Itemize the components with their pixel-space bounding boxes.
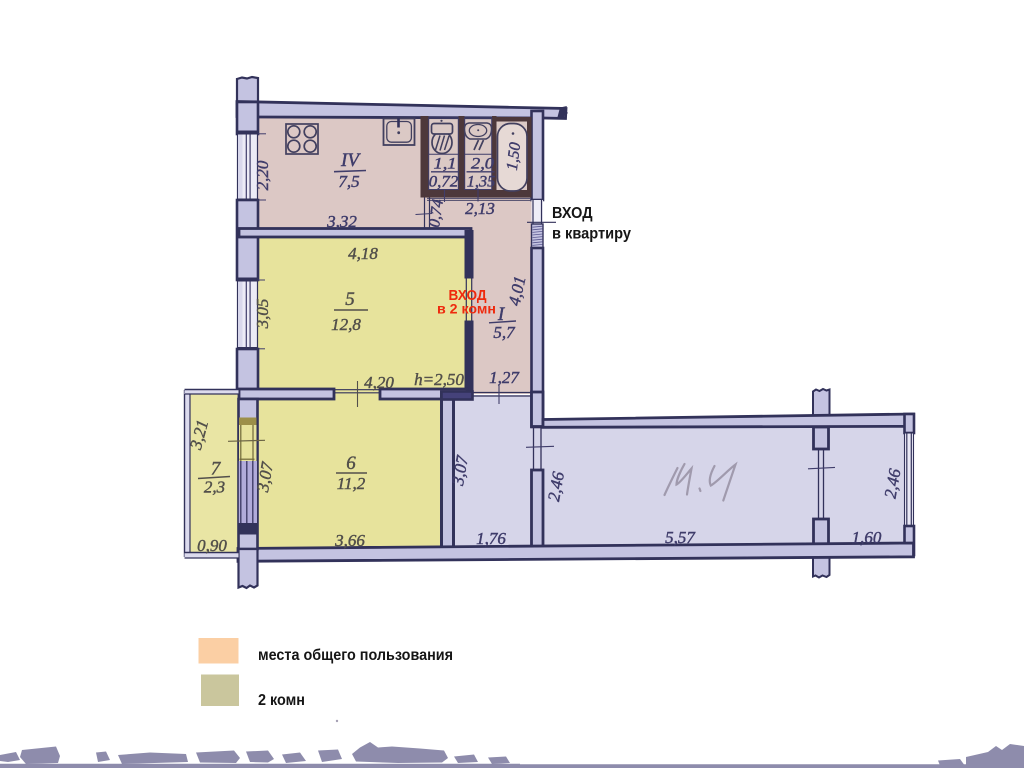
svg-text:1,76: 1,76 — [476, 529, 506, 548]
svg-text:IV: IV — [340, 150, 361, 171]
svg-text:1,50: 1,50 — [504, 142, 524, 172]
svg-text:1,60: 1,60 — [852, 528, 882, 547]
svg-text:3,05: 3,05 — [253, 299, 272, 330]
svg-text:в 2 комн: в 2 комн — [437, 302, 496, 317]
svg-text:1,27: 1,27 — [489, 368, 520, 387]
svg-text:0,72: 0,72 — [429, 174, 459, 191]
svg-text:5: 5 — [345, 289, 355, 310]
svg-text:в квартиру: в квартиру — [552, 226, 631, 243]
svg-text:1,1: 1,1 — [434, 156, 457, 173]
svg-text:ВХОД: ВХОД — [552, 205, 593, 222]
svg-text:2,13: 2,13 — [465, 199, 495, 218]
svg-text:4,18: 4,18 — [348, 244, 378, 263]
svg-text:4,20: 4,20 — [364, 373, 394, 392]
svg-text:места общего пользования: места общего пользования — [258, 647, 453, 664]
svg-text:2,3: 2,3 — [204, 478, 225, 497]
svg-text:11,2: 11,2 — [337, 474, 366, 493]
svg-text:5,7: 5,7 — [493, 323, 516, 342]
svg-text:5,57: 5,57 — [665, 528, 696, 547]
svg-text:12,8: 12,8 — [331, 315, 361, 334]
svg-text:3,32: 3,32 — [326, 212, 357, 231]
svg-text:0,90: 0,90 — [197, 536, 227, 555]
svg-text:2,20: 2,20 — [253, 160, 272, 190]
svg-text:2,0: 2,0 — [471, 156, 494, 173]
svg-text:7: 7 — [211, 459, 222, 480]
svg-text:3,66: 3,66 — [334, 531, 365, 550]
svg-text:7,5: 7,5 — [338, 172, 359, 191]
svg-text:h=2,50: h=2,50 — [414, 370, 464, 389]
svg-text:6: 6 — [346, 453, 356, 474]
svg-text:2 комн: 2 комн — [258, 692, 305, 709]
svg-text:1,35: 1,35 — [467, 174, 496, 191]
